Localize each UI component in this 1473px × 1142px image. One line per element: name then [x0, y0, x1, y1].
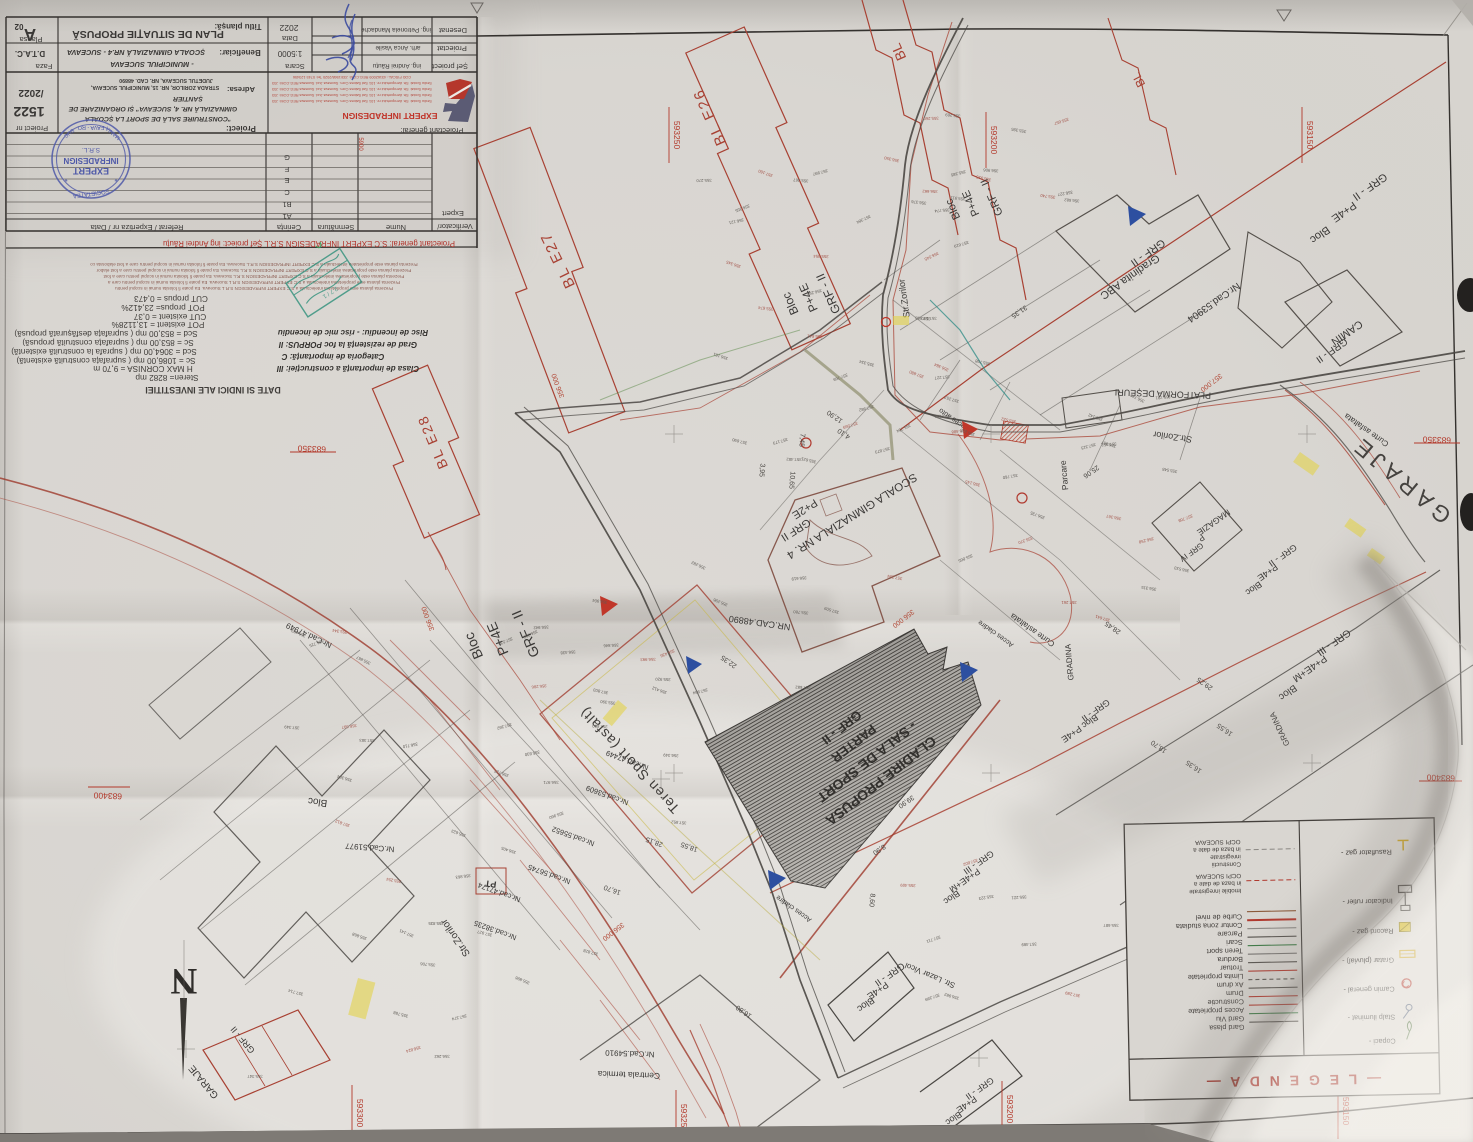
- svg-text:356.942: 356.942: [533, 625, 549, 631]
- svg-text:Prezenta plansa este proprieta: Prezenta plansa este proprietatea intele…: [90, 262, 418, 267]
- svg-text:3,95: 3,95: [757, 463, 765, 477]
- svg-text:356.846: 356.846: [603, 643, 619, 649]
- svg-text:593200: 593200: [989, 126, 999, 155]
- svg-text:Scd = 3064,00 mp ( suprafa la: Scd = 3064,00 mp ( suprafa la construită…: [11, 347, 197, 356]
- svg-text:Proiectat: Proiectat: [436, 44, 467, 53]
- svg-text:EAVA - RO: EAVA - RO: [77, 124, 104, 130]
- svg-text:Sc = 1086,00 mp ( suprafața co: Sc = 1086,00 mp ( suprafața construită e…: [16, 356, 195, 365]
- svg-text:Expert: Expert: [441, 209, 464, 218]
- svg-text:Verificator/: Verificator/: [436, 222, 472, 231]
- svg-text:OCPI SUCEAVA: OCPI SUCEAVA: [1194, 838, 1241, 846]
- svg-text:*: *: [114, 174, 117, 183]
- svg-text:357.489: 357.489: [1021, 942, 1037, 948]
- svg-text:593200: 593200: [1005, 1095, 1015, 1124]
- svg-text:Referat / Expertiza nr / Dat: Referat / Expertiza nr / Data: [90, 223, 184, 232]
- svg-text:Adresa:: Adresa:: [227, 85, 255, 94]
- svg-text:Scara: Scara: [284, 62, 304, 71]
- svg-text:Proiect nr: Proiect nr: [15, 124, 48, 133]
- svg-text:355.151: 355.151: [934, 414, 950, 420]
- svg-text:Sediu Social: Str. Aeroportulu: Sediu Social: Str. Aeroportului nr. 101 …: [272, 93, 432, 97]
- svg-text:Constructii: Constructii: [1212, 860, 1241, 868]
- svg-text:355.260: 355.260: [923, 116, 939, 122]
- svg-text:Scd = 853,00 mp ( suprafața de: Scd = 853,00 mp ( suprafața desfășurată …: [14, 329, 197, 338]
- svg-text:A1: A1: [282, 212, 291, 221]
- svg-text:S.R.L.: S.R.L.: [82, 146, 100, 153]
- svg-text:355.687: 355.687: [1103, 923, 1119, 928]
- svg-text:ȘANTIER: ȘANTIER: [173, 95, 203, 102]
- svg-text:7,45: 7,45: [797, 433, 805, 447]
- svg-text:*: *: [64, 174, 67, 183]
- svg-text:Prezenta plansa este proprieta: Prezenta plansa este proprietatea intele…: [96, 268, 411, 273]
- svg-text:Steren= 8282 mp: Steren= 8282 mp: [135, 373, 198, 382]
- svg-text:683400: 683400: [93, 790, 122, 801]
- svg-text:357.682: 357.682: [795, 685, 811, 691]
- svg-text:EXPERT INFRADESIGN: EXPERT INFRADESIGN: [343, 111, 438, 121]
- svg-text:Proiectant general:: Proiectant general:: [401, 126, 464, 135]
- svg-text:683350: 683350: [297, 443, 326, 454]
- svg-text:5900: 5900: [357, 137, 363, 151]
- svg-text:Sediu Social: Str. Aeroportulu: Sediu Social: Str. Aeroportului nr. 101 …: [272, 81, 432, 85]
- svg-text:Curbe de nivel: Curbe de nivel: [1195, 912, 1242, 922]
- svg-text:arh. Anca Vasile: arh. Anca Vasile: [375, 44, 421, 51]
- svg-text:DATE SI INDICI ALE INVESTITIEI: DATE SI INDICI ALE INVESTITIEI: [145, 385, 280, 395]
- svg-text:355.354: 355.354: [813, 254, 829, 260]
- svg-text:355.347: 355.347: [247, 1074, 263, 1079]
- svg-text:B1: B1: [282, 200, 291, 209]
- svg-text:GIMNAZIALĂ NR. 4, SUCEAVA" ȘI: GIMNAZIALĂ NR. 4, SUCEAVA" ȘI ORGANIZARE…: [68, 105, 237, 114]
- svg-text:POT propus= 23,412%: POT propus= 23,412%: [121, 303, 204, 312]
- svg-text:355.409: 355.409: [900, 883, 916, 889]
- svg-text:POT existent = 13,1128%: POT existent = 13,1128%: [112, 320, 205, 329]
- svg-text:Proiect:: Proiect:: [226, 124, 256, 133]
- svg-text:357.100: 357.100: [921, 316, 937, 321]
- svg-text:Sediu Social: Str. Aeroportulu: Sediu Social: Str. Aeroportului nr. 101 …: [272, 99, 432, 103]
- svg-text:- MUNICIPIUL SUCEAVA: - MUNICIPIUL SUCEAVA: [110, 60, 194, 69]
- svg-text:ing. Andrei Răuțu: ing. Andrei Răuțu: [372, 62, 421, 69]
- svg-text:/2022: /2022: [18, 87, 43, 98]
- svg-text:OCPI SUCEAVA: OCPI SUCEAVA: [1195, 872, 1242, 880]
- svg-text:593300: 593300: [355, 1099, 365, 1128]
- svg-text:357.482: 357.482: [786, 457, 802, 462]
- svg-text:inregistrate: inregistrate: [1210, 853, 1241, 861]
- svg-text:356.641: 356.641: [807, 334, 823, 340]
- svg-text:COD FISCAL: 43162009 REG.COM: COD FISCAL: 43162009 REG.COM: J33/1568/2…: [293, 75, 411, 79]
- svg-text:G: G: [284, 153, 290, 162]
- svg-text:355.835: 355.835: [428, 921, 444, 926]
- svg-text:593250: 593250: [672, 121, 682, 150]
- svg-text:02: 02: [14, 22, 23, 31]
- svg-text:356.662: 356.662: [922, 189, 938, 194]
- svg-text:357.630: 357.630: [592, 724, 608, 730]
- svg-text:Prezenta plansa este proprieta: Prezenta plansa este proprietatea intele…: [108, 280, 400, 285]
- svg-text:356.349: 356.349: [663, 753, 679, 759]
- svg-text:Imobile inregistrate: Imobile inregistrate: [1189, 887, 1242, 895]
- svg-text:STRADA ZORILOR, NR. 15, MUNICI: STRADA ZORILOR, NR. 15, MUNICIPIUL SUCEA…: [90, 84, 219, 90]
- svg-text:CUT propus = 0,473: CUT propus = 0,473: [134, 294, 208, 303]
- svg-text:Cerința: Cerința: [276, 223, 301, 232]
- svg-text:Categoria de importanță: C: Categoria de importanță: C: [281, 352, 384, 361]
- svg-text:Sc = 853,00 mp ( suprafața con: Sc = 853,00 mp ( suprafața construită pr…: [22, 338, 194, 347]
- svg-text:in baza de date a: in baza de date a: [1193, 879, 1241, 887]
- svg-text:683350: 683350: [1422, 434, 1451, 445]
- svg-text:Faza: Faza: [35, 62, 53, 71]
- svg-text:Grad de rezistență la foc PORP: Grad de rezistență la foc PORPUS: II: [278, 340, 417, 349]
- svg-text:356.262: 356.262: [434, 1054, 450, 1059]
- svg-text:INFRADESIGN: INFRADESIGN: [63, 156, 118, 165]
- svg-text:C: C: [284, 188, 290, 197]
- svg-text:357.383: 357.383: [359, 738, 375, 743]
- svg-text:1:5000: 1:5000: [277, 49, 302, 58]
- svg-text:Semnătura: Semnătura: [317, 223, 355, 232]
- svg-text:JUDETUL SUCEAVA, NR. CAD. 4889: JUDETUL SUCEAVA, NR. CAD. 48890: [119, 77, 213, 83]
- svg-text:Data: Data: [281, 34, 298, 43]
- svg-text:1522: 1522: [13, 104, 44, 120]
- svg-text:Proiectant general: S.C EXPER: Proiectant general: S.C EXPERT INFRADESI…: [163, 239, 455, 248]
- svg-text:2022: 2022: [279, 23, 298, 33]
- svg-text:355.270: 355.270: [696, 178, 712, 183]
- svg-text:Beneficiar:: Beneficiar:: [219, 48, 260, 57]
- svg-text:355.920: 355.920: [655, 677, 671, 683]
- svg-text:H MAX CORNISA = 9,70 m: H MAX CORNISA = 9,70 m: [93, 364, 193, 373]
- svg-text:Nume: Nume: [386, 223, 406, 232]
- svg-text:ing. Petronela Mandache: ing. Petronela Mandache: [360, 26, 431, 33]
- svg-text:Șef proiect: Șef proiect: [431, 62, 468, 71]
- svg-text:PLAN DE SITUAȚIE PROPUSĂ: PLAN DE SITUAȚIE PROPUSĂ: [72, 28, 224, 41]
- svg-text:356.971: 356.971: [543, 780, 559, 785]
- svg-text:Nr.Cad.54910: Nr.Cad.54910: [605, 1048, 655, 1059]
- svg-text:593150: 593150: [1305, 121, 1315, 150]
- svg-text:Risc de incendiu: - risc mic d: Risc de incendiu: - risc mic de incendiu: [278, 328, 428, 337]
- svg-text:D.T.A.C.: D.T.A.C.: [15, 49, 45, 58]
- svg-text:Desenat: Desenat: [438, 26, 467, 35]
- svg-text:in baza de date a: in baza de date a: [1193, 845, 1241, 853]
- svg-text:CUT existent = 0,37: CUT existent = 0,37: [133, 312, 206, 321]
- svg-text:F: F: [284, 165, 289, 174]
- svg-text:Sediu Social: Str. Aeroportulu: Sediu Social: Str. Aeroportului nr. 101 …: [272, 87, 432, 91]
- svg-text:EXPERT: EXPERT: [72, 166, 109, 176]
- svg-text:8,60: 8,60: [867, 893, 875, 907]
- svg-text:E: E: [284, 176, 289, 185]
- svg-text:Plansa: Plansa: [19, 35, 43, 44]
- svg-text:356.993: 356.993: [640, 657, 656, 662]
- svg-text:ȘCOALA GIMNAZIALĂ NR.4 - SUCEA: ȘCOALA GIMNAZIALĂ NR.4 - SUCEAVA: [67, 48, 205, 57]
- svg-text:357.261: 357.261: [1061, 600, 1077, 605]
- svg-text:Clasa de importanță a construc: Clasa de importanță a construcției: III: [276, 364, 419, 373]
